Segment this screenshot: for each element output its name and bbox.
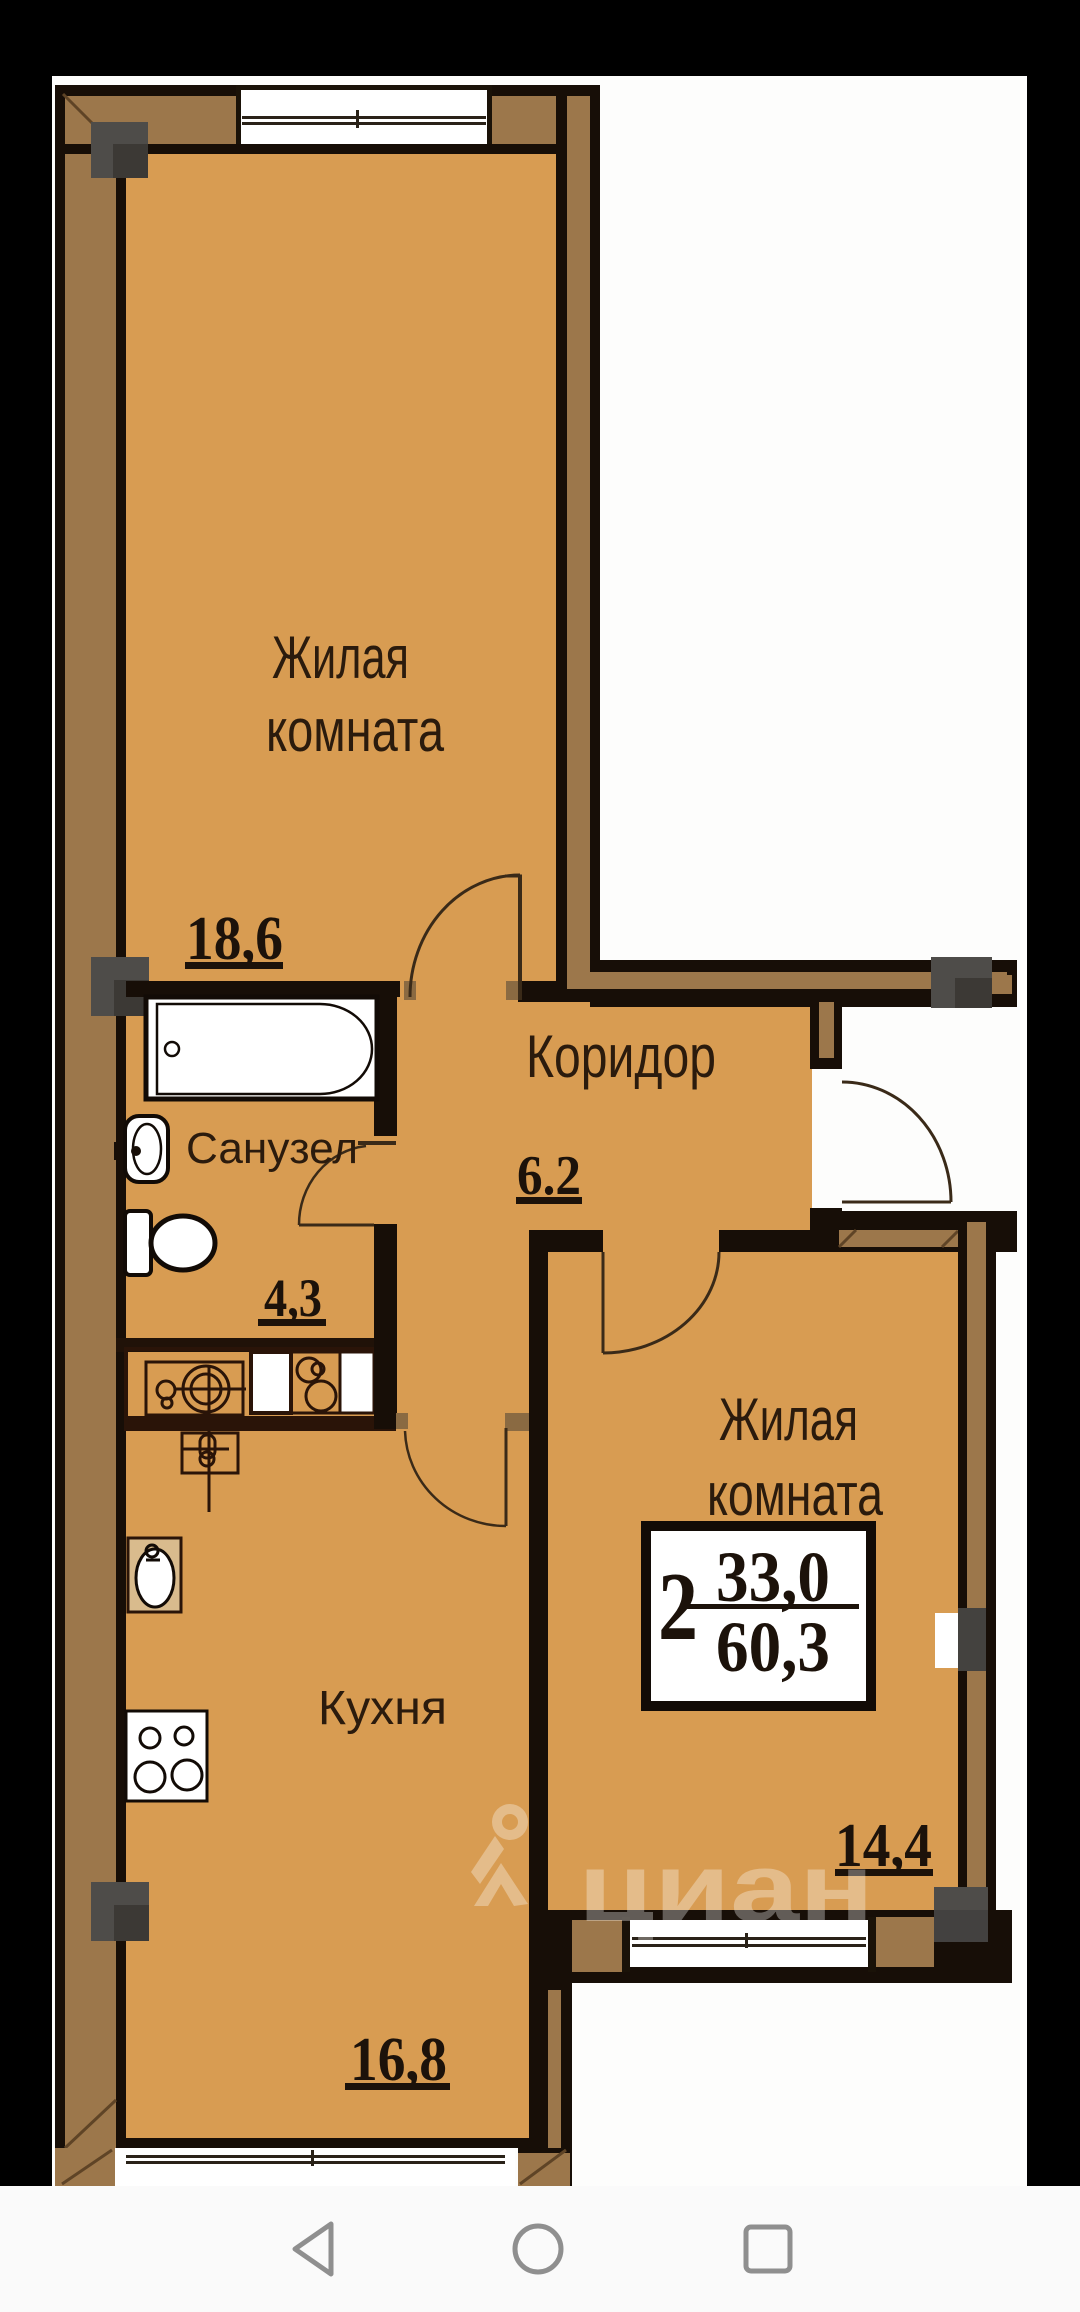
svg-text:комната: комната <box>266 697 444 764</box>
svg-text:Санузел: Санузел <box>186 1124 358 1173</box>
svg-text:комната: комната <box>707 1461 883 1528</box>
svg-text:Жилая: Жилая <box>272 624 409 691</box>
svg-text:60,3: 60,3 <box>716 1607 830 1687</box>
svg-text:циан: циан <box>578 1833 874 1942</box>
svg-text:Жилая: Жилая <box>719 1386 858 1453</box>
svg-text:Коридор: Коридор <box>526 1023 716 1090</box>
svg-text:Кухня: Кухня <box>318 1682 447 1735</box>
